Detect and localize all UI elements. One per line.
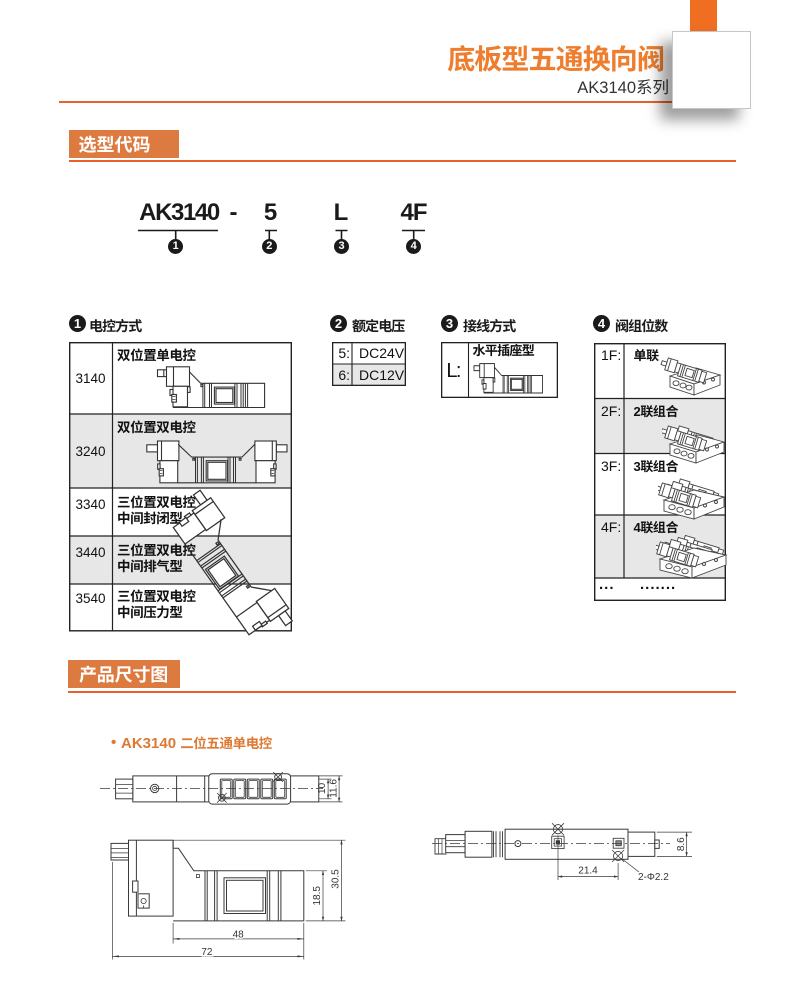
svg-text:21.4: 21.4 [578, 866, 598, 877]
svg-text:11.6: 11.6 [329, 779, 340, 798]
svg-text:30.5: 30.5 [330, 869, 341, 889]
svg-text:48: 48 [233, 930, 245, 941]
svg-text:10: 10 [317, 782, 328, 794]
svg-text:72: 72 [201, 947, 213, 958]
svg-text:18.5: 18.5 [312, 886, 323, 906]
svg-text:8.6: 8.6 [676, 837, 687, 851]
svg-text:2-Φ2.2: 2-Φ2.2 [638, 872, 669, 883]
